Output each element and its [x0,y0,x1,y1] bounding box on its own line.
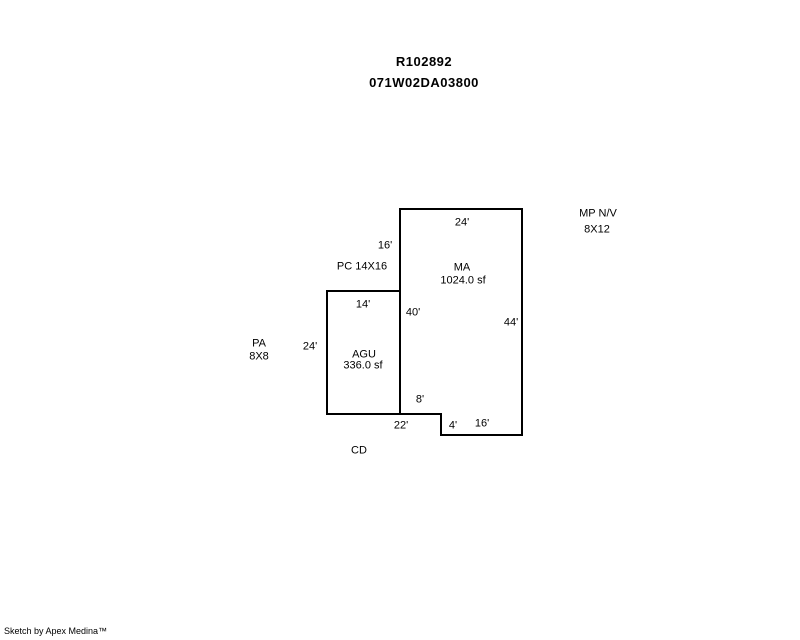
area-size-ma: 1024.0 sf [440,276,485,287]
sketch-credit: Sketch by Apex Medina™ [4,627,107,636]
area-dims-pa: 8X8 [249,352,269,363]
dim-bottom-right: 16' [475,419,489,430]
area-code-cd: CD [351,446,367,457]
dim-ma-top: 24' [455,218,469,229]
dim-ma-left: 40' [406,308,420,319]
dim-ma-right: 44' [504,318,518,329]
building-sketch [0,0,800,640]
dim-bottom-left: 22' [394,421,408,432]
dim-pc-height: 16' [378,241,392,252]
dim-notch: 8' [416,395,424,406]
area-code-mp: MP N/V [579,209,617,220]
area-label-pc: PC 14X16 [337,262,387,273]
area-code-ma: MA [454,263,471,274]
area-size-agu: 336.0 sf [343,361,382,372]
dim-agu-left: 24' [303,342,317,353]
property-sketch-page: R102892 071W02DA03800 24' 16' 14' 40' 44… [0,0,800,640]
dim-agu-top: 14' [356,300,370,311]
area-dims-mp: 8X12 [584,225,610,236]
area-code-pa: PA [252,339,266,350]
dim-step: 4' [449,421,457,432]
